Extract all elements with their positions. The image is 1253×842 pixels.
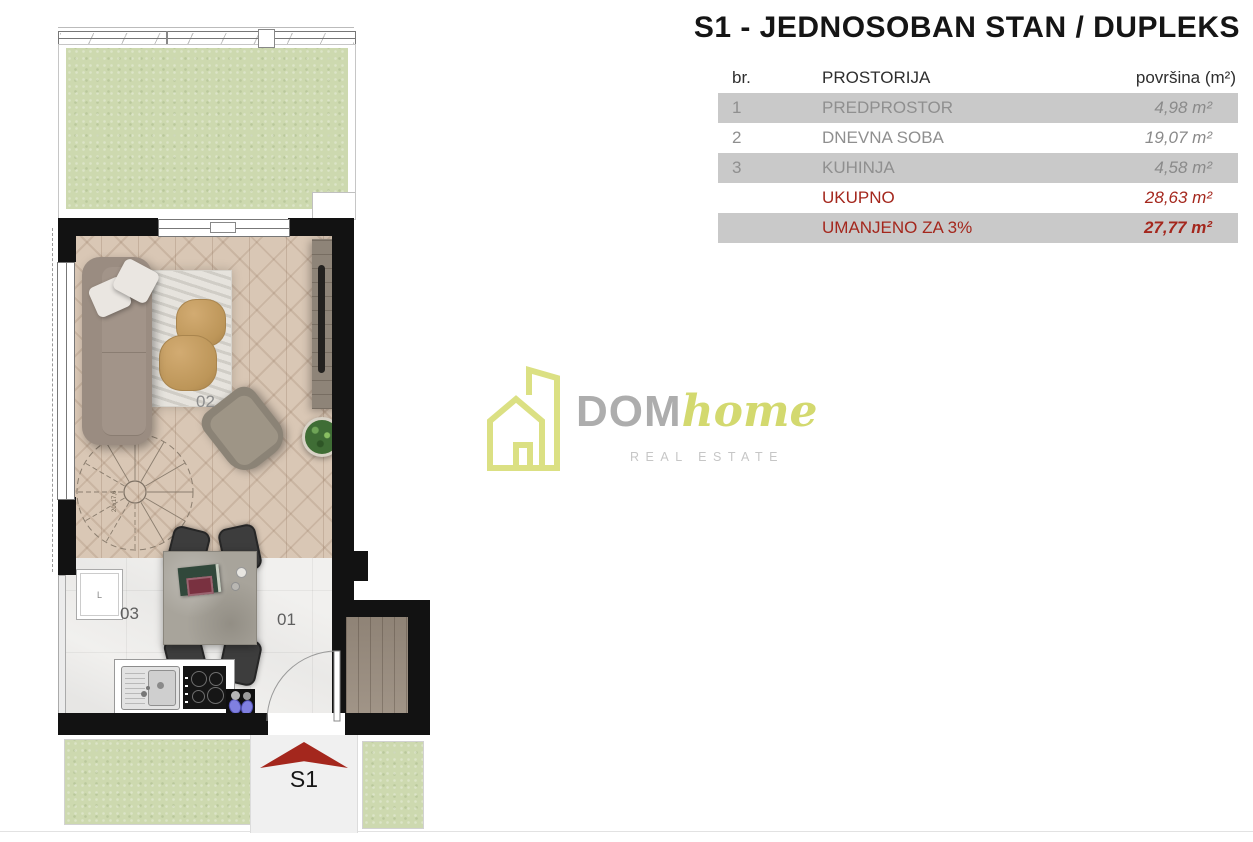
reduced-label: UMANJENO ZA 3% <box>822 218 1008 238</box>
wall-bottom-right <box>345 713 430 735</box>
room-label-hall: 01 <box>277 610 296 630</box>
burner <box>209 672 223 686</box>
page: 20x17,6 L <box>0 0 1253 842</box>
col-header-num: br. <box>718 68 822 88</box>
wall-left-upper <box>58 218 76 262</box>
row-area: 4,58 m² <box>1008 158 1238 178</box>
table-header-row: br. PROSTORIJA površina (m²) <box>718 63 1238 93</box>
terrace-railing-gap <box>258 29 275 48</box>
appliance-label: L <box>97 590 102 600</box>
kitchen-sink <box>121 666 180 710</box>
table-row: 3 KUHINJA 4,58 m² <box>718 153 1238 183</box>
stair-annotation: 20x17,6 <box>112 491 118 512</box>
page-title: S1 - JEDNOSOBAN STAN / DUPLEKS <box>655 11 1240 45</box>
cooktop <box>183 666 226 709</box>
cup <box>231 582 240 591</box>
room-label-kitchen: 03 <box>120 604 139 624</box>
total-area: 28,63 m² <box>1008 188 1238 208</box>
row-room: PREDPROSTOR <box>822 98 1008 118</box>
logo-text-dom: DOM <box>576 387 682 436</box>
cup <box>236 567 247 578</box>
domhome-logo: DOMhome REAL ESTATE <box>478 362 798 480</box>
window-top-detail <box>210 222 236 233</box>
row-room: DNEVNA SOBA <box>822 128 1008 148</box>
appliance-cabinet: L <box>76 569 123 620</box>
sink-drainboard <box>125 671 145 704</box>
shoe <box>243 692 251 700</box>
table-row: 1 PREDPROSTOR 4,98 m² <box>718 93 1238 123</box>
doormat <box>226 689 255 716</box>
cooktop-knobs <box>185 673 188 703</box>
book <box>186 576 214 597</box>
logo-text-home: home <box>682 386 818 437</box>
table-total-row: UKUPNO 28,63 m² <box>718 183 1238 213</box>
burner <box>192 690 205 703</box>
wall-right-pier <box>354 551 368 581</box>
area-table: br. PROSTORIJA površina (m²) 1 PREDPROST… <box>718 63 1238 243</box>
terrace-top-grass <box>66 48 348 209</box>
room-label-living: 02 <box>196 392 215 412</box>
bottom-boundary-line <box>0 831 1253 832</box>
domhome-logo-icon <box>484 364 564 474</box>
tv <box>318 265 325 373</box>
storage-niche-deck <box>346 616 408 715</box>
row-area: 4,98 m² <box>1008 98 1238 118</box>
window-left <box>57 262 75 500</box>
shoe <box>231 691 240 700</box>
wall-left-thin <box>58 575 66 717</box>
terrace-step <box>312 192 355 219</box>
entrance-door <box>262 647 346 727</box>
row-area: 19,07 m² <box>1008 128 1238 148</box>
burner <box>191 671 207 687</box>
wall-right <box>332 218 354 606</box>
coffee-table-large <box>159 335 217 391</box>
table-row: 2 DNEVNA SOBA 19,07 m² <box>718 123 1238 153</box>
terrace-railing-post <box>166 31 168 44</box>
burner <box>207 687 224 704</box>
row-num: 3 <box>718 158 822 178</box>
overhang-dashed-line <box>52 228 53 572</box>
col-header-room: PROSTORIJA <box>822 68 1008 88</box>
grass-bottom-left <box>64 739 252 825</box>
col-header-area: površina (m²) <box>1008 68 1238 88</box>
roof-overhang-line <box>58 27 354 28</box>
unit-label: S1 <box>252 766 356 793</box>
row-num: 1 <box>718 98 822 118</box>
table-reduced-row: UMANJENO ZA 3% 27,77 m² <box>718 213 1238 243</box>
row-room: KUHINJA <box>822 158 1008 178</box>
total-label: UKUPNO <box>822 188 1008 208</box>
wall-left-mid <box>58 497 76 575</box>
sink-drain <box>157 682 164 689</box>
logo-subtitle: REAL ESTATE <box>630 450 784 464</box>
faucet <box>141 691 147 697</box>
wall-bottom-left <box>58 713 268 735</box>
reduced-area: 27,77 m² <box>1008 218 1238 238</box>
grass-bottom-right <box>362 741 424 829</box>
row-num: 2 <box>718 128 822 148</box>
sofa-seat-divider <box>102 352 146 353</box>
